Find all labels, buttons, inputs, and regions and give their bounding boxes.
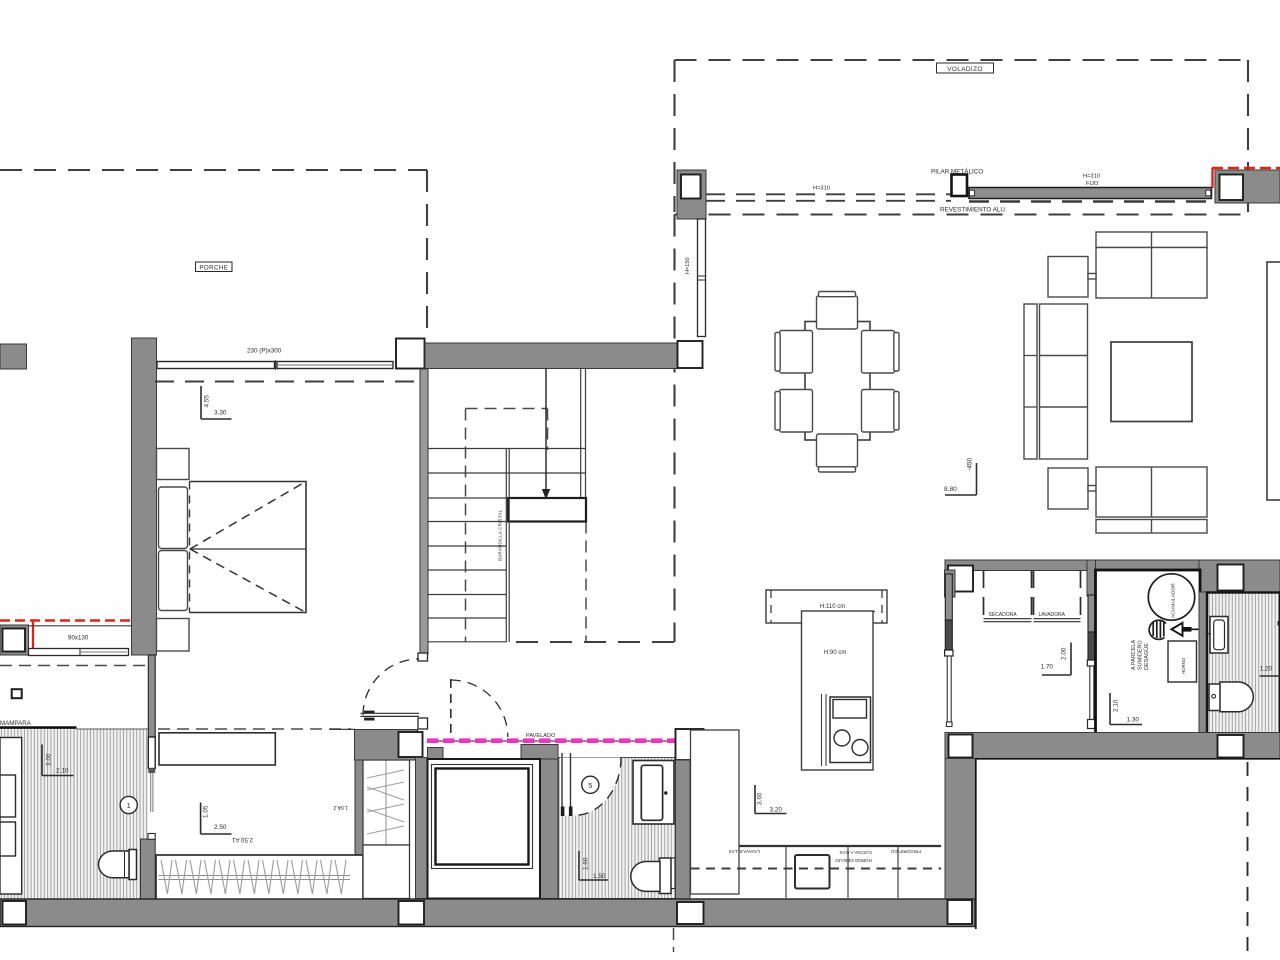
svg-text:H=150: H=150 <box>685 257 691 274</box>
svg-text:2.10: 2.10 <box>1113 699 1120 712</box>
svg-text:1.60: 1.60 <box>583 857 590 870</box>
svg-text:PILAR METÁLICO: PILAR METÁLICO <box>931 167 983 176</box>
svg-text:HORNO: HORNO <box>1181 657 1186 674</box>
svg-text:4.55: 4.55 <box>204 395 211 408</box>
svg-text:COCINA A GAS: COCINA A GAS <box>840 850 872 855</box>
svg-text:3.60: 3.60 <box>757 792 764 805</box>
svg-text:3.20: 3.20 <box>770 807 783 814</box>
svg-text:MAMPARA: MAMPARA <box>0 720 32 727</box>
svg-text:A PARCELA: A PARCELA <box>1131 640 1137 670</box>
svg-text:ACUMULADOR: ACUMULADOR <box>1171 583 1177 618</box>
svg-text:H:110 cm: H:110 cm <box>820 604 845 610</box>
svg-text:VOLADIZO: VOLADIZO <box>947 66 983 73</box>
svg-text:1.05: 1.05 <box>203 805 210 818</box>
svg-text:SUMIDERO: SUMIDERO <box>1138 640 1144 670</box>
svg-text:2.10: 2.10 <box>56 768 69 775</box>
svg-text:90x130: 90x130 <box>68 635 89 642</box>
svg-text:LAVADORA: LAVADORA <box>1039 612 1066 618</box>
svg-text:1.20: 1.20 <box>1260 666 1273 673</box>
svg-text:PORCHE: PORCHE <box>199 265 228 272</box>
svg-text:-450: -450 <box>967 457 974 471</box>
svg-text:PAVELADO: PAVELADO <box>526 733 556 739</box>
svg-text:1.50: 1.50 <box>593 873 606 880</box>
svg-text:DESAGÜE: DESAGÜE <box>1143 643 1150 670</box>
svg-text:230 (P)x300: 230 (P)x300 <box>247 348 282 355</box>
svg-text:8.80: 8.80 <box>944 486 957 493</box>
svg-text:1.0: 1.0 <box>341 804 348 810</box>
svg-text:1.30: 1.30 <box>1127 717 1140 724</box>
svg-text:1.70: 1.70 <box>1041 664 1054 671</box>
svg-text:A.2: A.2 <box>333 804 341 810</box>
svg-text:BARANDILLA CRISTAL: BARANDILLA CRISTAL <box>498 509 503 561</box>
svg-text:FIJO: FIJO <box>1086 181 1099 187</box>
svg-text:2.50: 2.50 <box>214 824 227 831</box>
svg-text:REVESTIMIENTO ALU.: REVESTIMIENTO ALU. <box>940 207 1007 214</box>
svg-text:3.00: 3.00 <box>46 753 53 766</box>
svg-text:3.30: 3.30 <box>214 410 227 417</box>
svg-text:5: 5 <box>588 781 592 790</box>
svg-text:2.50 A1: 2.50 A1 <box>231 836 253 843</box>
svg-text:FRIGORIFICO: FRIGORIFICO <box>890 849 921 854</box>
svg-text:1: 1 <box>127 801 131 810</box>
svg-text:H=310: H=310 <box>813 186 830 192</box>
svg-text:2.00: 2.00 <box>1061 647 1068 660</box>
svg-text:H:90 cm: H:90 cm <box>824 650 846 656</box>
svg-text:LAVAVAJILLAS: LAVAVAJILLAS <box>729 849 760 854</box>
svg-text:H=310: H=310 <box>1083 174 1100 180</box>
svg-text:HORNO DEBAJO: HORNO DEBAJO <box>835 858 872 863</box>
svg-text:SECADORA: SECADORA <box>989 612 1018 618</box>
